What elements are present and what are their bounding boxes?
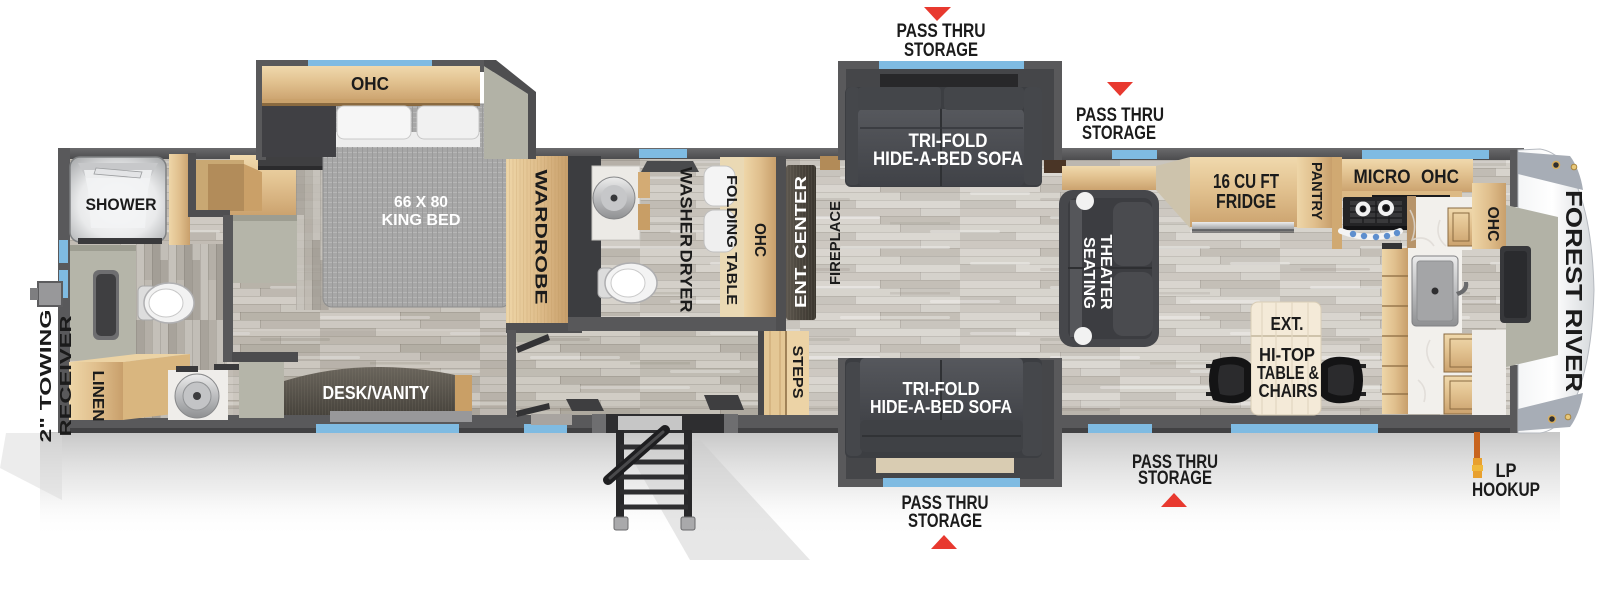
svg-text:FIREPLACE: FIREPLACE xyxy=(828,201,844,285)
svg-text:TABLE &: TABLE & xyxy=(1257,363,1319,383)
svg-text:LINEN: LINEN xyxy=(89,371,106,422)
svg-text:EXT.: EXT. xyxy=(1271,314,1304,334)
svg-text:HOOKUP: HOOKUP xyxy=(1472,480,1540,501)
svg-text:STEPS: STEPS xyxy=(789,346,806,399)
svg-text:OHC: OHC xyxy=(751,223,768,257)
svg-text:ENT. CENTER: ENT. CENTER xyxy=(793,176,810,308)
svg-text:MICRO: MICRO xyxy=(1354,166,1411,188)
svg-text:KING BED: KING BED xyxy=(382,212,461,229)
svg-text:STORAGE: STORAGE xyxy=(1082,122,1156,144)
svg-text:STORAGE: STORAGE xyxy=(904,39,978,61)
svg-text:HI-TOP: HI-TOP xyxy=(1259,345,1315,365)
svg-text:2" TOWING: 2" TOWING xyxy=(38,310,55,443)
svg-text:DESK/VANITY: DESK/VANITY xyxy=(323,382,431,403)
svg-text:FRIDGE: FRIDGE xyxy=(1216,191,1276,213)
svg-text:FOLDING TABLE: FOLDING TABLE xyxy=(723,175,739,305)
svg-text:OHC: OHC xyxy=(1484,207,1501,242)
svg-text:HIDE-A-BED SOFA: HIDE-A-BED SOFA xyxy=(873,149,1023,170)
svg-text:CHAIRS: CHAIRS xyxy=(1259,381,1318,401)
svg-text:HIDE-A-BED SOFA: HIDE-A-BED SOFA xyxy=(870,396,1012,417)
svg-text:WARDROBE: WARDROBE xyxy=(532,170,550,305)
svg-text:WASHER: WASHER xyxy=(677,167,695,247)
svg-text:STORAGE: STORAGE xyxy=(1138,467,1212,489)
svg-text:SEATING: SEATING xyxy=(1080,237,1097,309)
svg-text:OHC: OHC xyxy=(1421,166,1459,188)
svg-text:LP: LP xyxy=(1496,461,1517,482)
svg-text:FOREST RIVER: FOREST RIVER xyxy=(1561,190,1587,392)
svg-text:SHOWER: SHOWER xyxy=(86,196,157,214)
svg-text:THEATER: THEATER xyxy=(1097,235,1114,310)
svg-text:DRYER: DRYER xyxy=(677,250,695,313)
svg-text:STORAGE: STORAGE xyxy=(908,510,982,532)
svg-text:OHC: OHC xyxy=(351,74,389,94)
svg-text:PANTRY: PANTRY xyxy=(1308,162,1325,220)
svg-text:RECEIVER: RECEIVER xyxy=(58,316,75,437)
svg-text:16 CU FT: 16 CU FT xyxy=(1213,171,1279,193)
svg-text:66 X 80: 66 X 80 xyxy=(394,194,448,211)
